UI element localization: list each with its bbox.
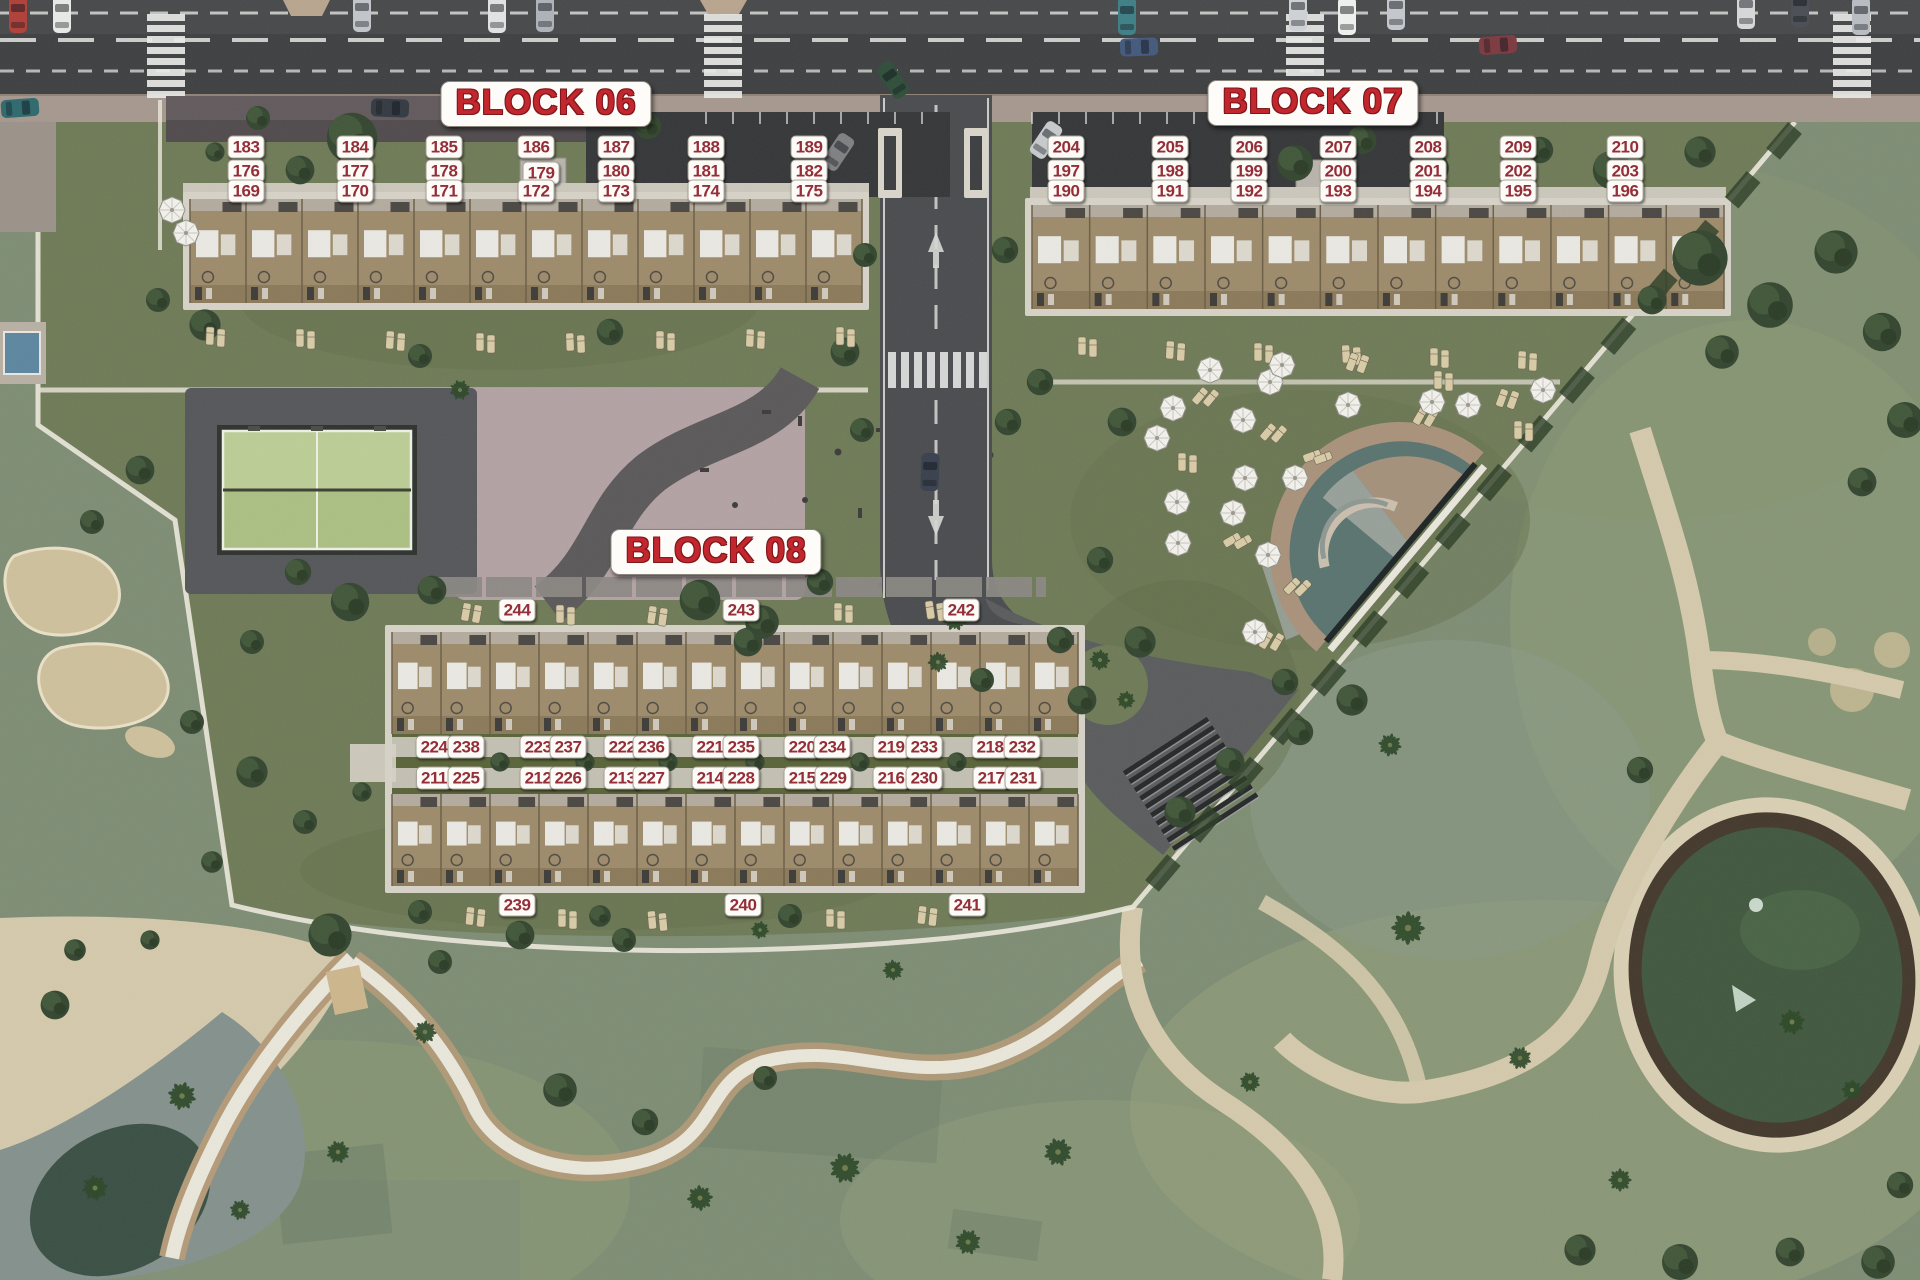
plot-label-219[interactable]: 219 bbox=[873, 736, 910, 759]
plot-label-229[interactable]: 229 bbox=[815, 767, 852, 790]
plot-label-194[interactable]: 194 bbox=[1410, 180, 1447, 203]
plot-label-195[interactable]: 195 bbox=[1500, 180, 1537, 203]
plot-label-242[interactable]: 242 bbox=[943, 599, 980, 622]
title-block-07[interactable]: BLOCK 07 bbox=[1207, 80, 1418, 126]
plot-label-190[interactable]: 190 bbox=[1048, 180, 1085, 203]
plot-label-239[interactable]: 239 bbox=[499, 894, 536, 917]
plot-label-175[interactable]: 175 bbox=[791, 180, 828, 203]
plot-label-170[interactable]: 170 bbox=[337, 180, 374, 203]
plot-label-233[interactable]: 233 bbox=[906, 736, 943, 759]
plot-label-230[interactable]: 230 bbox=[906, 767, 943, 790]
plot-label-209[interactable]: 209 bbox=[1500, 136, 1537, 159]
site-plan: BLOCK 06 BLOCK 07 BLOCK 08 1831841851861… bbox=[0, 0, 1920, 1280]
plot-label-241[interactable]: 241 bbox=[949, 894, 986, 917]
plot-label-240[interactable]: 240 bbox=[725, 894, 762, 917]
plot-label-189[interactable]: 189 bbox=[791, 136, 828, 159]
plot-label-226[interactable]: 226 bbox=[550, 767, 587, 790]
title-block-08[interactable]: BLOCK 08 bbox=[610, 529, 821, 575]
plot-label-227[interactable]: 227 bbox=[633, 767, 670, 790]
plot-label-184[interactable]: 184 bbox=[337, 136, 374, 159]
plot-label-243[interactable]: 243 bbox=[723, 599, 760, 622]
plot-label-193[interactable]: 193 bbox=[1320, 180, 1357, 203]
plot-label-235[interactable]: 235 bbox=[723, 736, 760, 759]
plot-label-169[interactable]: 169 bbox=[228, 180, 265, 203]
plot-label-228[interactable]: 228 bbox=[723, 767, 760, 790]
plot-label-174[interactable]: 174 bbox=[688, 180, 725, 203]
plot-label-172[interactable]: 172 bbox=[518, 180, 555, 203]
plot-label-236[interactable]: 236 bbox=[633, 736, 670, 759]
plot-label-196[interactable]: 196 bbox=[1607, 180, 1644, 203]
plot-label-238[interactable]: 238 bbox=[448, 736, 485, 759]
plot-label-225[interactable]: 225 bbox=[448, 767, 485, 790]
plot-label-216[interactable]: 216 bbox=[873, 767, 910, 790]
plot-label-232[interactable]: 232 bbox=[1004, 736, 1041, 759]
plot-labels-layer: BLOCK 06 BLOCK 07 BLOCK 08 1831841851861… bbox=[0, 0, 1920, 1280]
plot-label-205[interactable]: 205 bbox=[1152, 136, 1189, 159]
plot-label-244[interactable]: 244 bbox=[499, 599, 536, 622]
plot-label-173[interactable]: 173 bbox=[598, 180, 635, 203]
plot-label-204[interactable]: 204 bbox=[1048, 136, 1085, 159]
plot-label-185[interactable]: 185 bbox=[426, 136, 463, 159]
plot-label-183[interactable]: 183 bbox=[228, 136, 265, 159]
plot-label-207[interactable]: 207 bbox=[1320, 136, 1357, 159]
plot-label-188[interactable]: 188 bbox=[688, 136, 725, 159]
plot-label-206[interactable]: 206 bbox=[1231, 136, 1268, 159]
plot-label-187[interactable]: 187 bbox=[598, 136, 635, 159]
plot-label-210[interactable]: 210 bbox=[1607, 136, 1644, 159]
plot-label-237[interactable]: 237 bbox=[550, 736, 587, 759]
plot-label-171[interactable]: 171 bbox=[426, 180, 463, 203]
plot-label-234[interactable]: 234 bbox=[814, 736, 851, 759]
plot-label-192[interactable]: 192 bbox=[1231, 180, 1268, 203]
title-block-06[interactable]: BLOCK 06 bbox=[440, 81, 651, 127]
plot-label-191[interactable]: 191 bbox=[1152, 180, 1189, 203]
plot-label-231[interactable]: 231 bbox=[1005, 767, 1042, 790]
plot-label-186[interactable]: 186 bbox=[518, 136, 555, 159]
plot-label-208[interactable]: 208 bbox=[1410, 136, 1447, 159]
